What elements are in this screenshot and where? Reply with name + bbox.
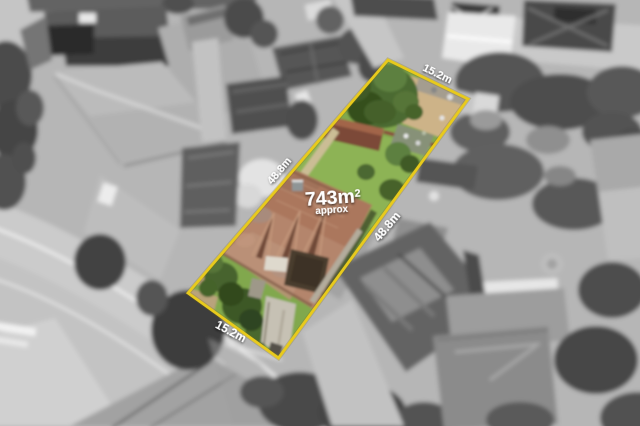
svg-text:approx: approx [315,204,349,217]
